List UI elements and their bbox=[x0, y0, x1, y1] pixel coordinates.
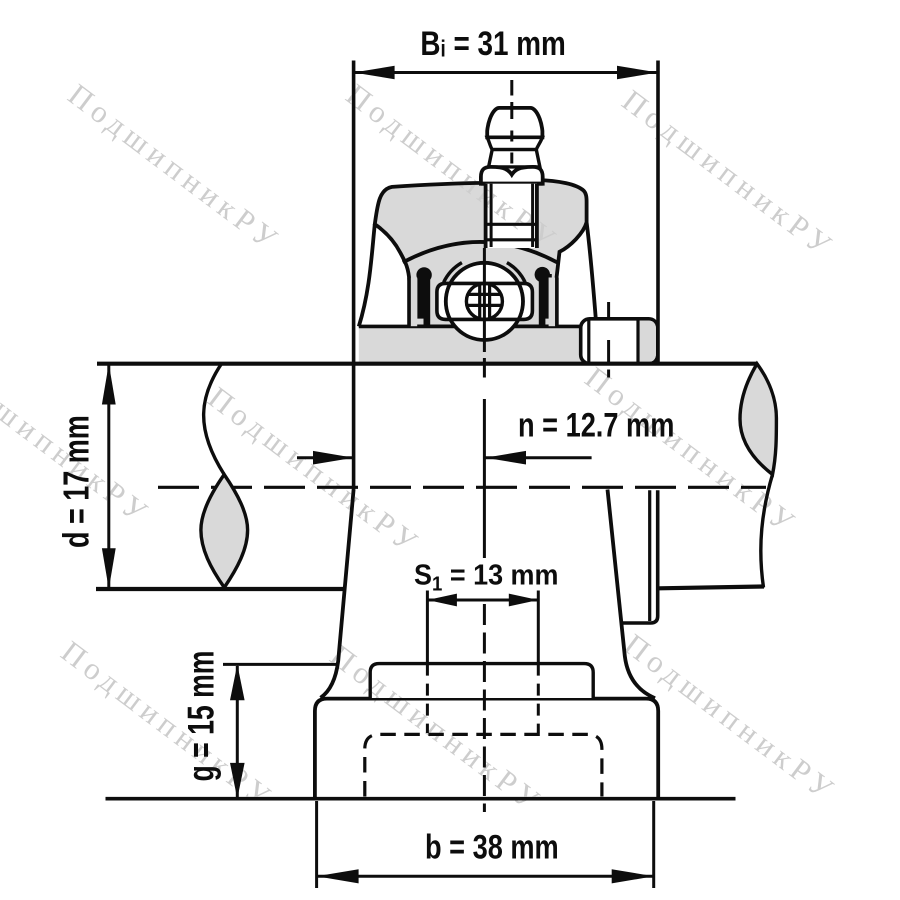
svg-text:b = 38 mm: b = 38 mm bbox=[425, 828, 559, 867]
